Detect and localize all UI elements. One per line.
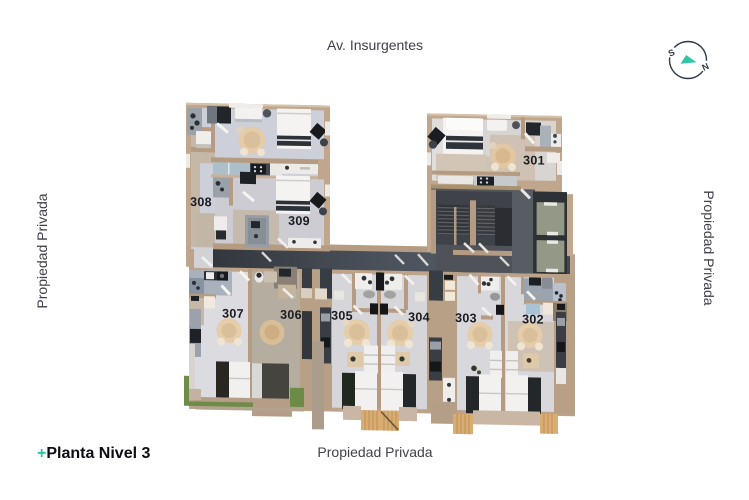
svg-text:307: 307 — [222, 306, 244, 320]
svg-text:+Planta Nivel 3: +Planta Nivel 3 — [37, 445, 150, 462]
svg-text:303: 303 — [455, 311, 477, 325]
svg-text:Av. Insurgentes: Av. Insurgentes — [327, 37, 423, 53]
svg-text:304: 304 — [408, 310, 430, 324]
svg-text:Propiedad Privada: Propiedad Privada — [34, 193, 50, 308]
svg-text:Propiedad Privada: Propiedad Privada — [317, 444, 432, 460]
svg-text:305: 305 — [331, 309, 353, 323]
svg-text:306: 306 — [280, 308, 302, 322]
svg-text:309: 309 — [288, 214, 310, 228]
svg-text:301: 301 — [523, 153, 545, 167]
svg-text:Propiedad Privada: Propiedad Privada — [701, 190, 717, 305]
svg-text:302: 302 — [522, 312, 544, 326]
svg-text:308: 308 — [190, 195, 212, 209]
